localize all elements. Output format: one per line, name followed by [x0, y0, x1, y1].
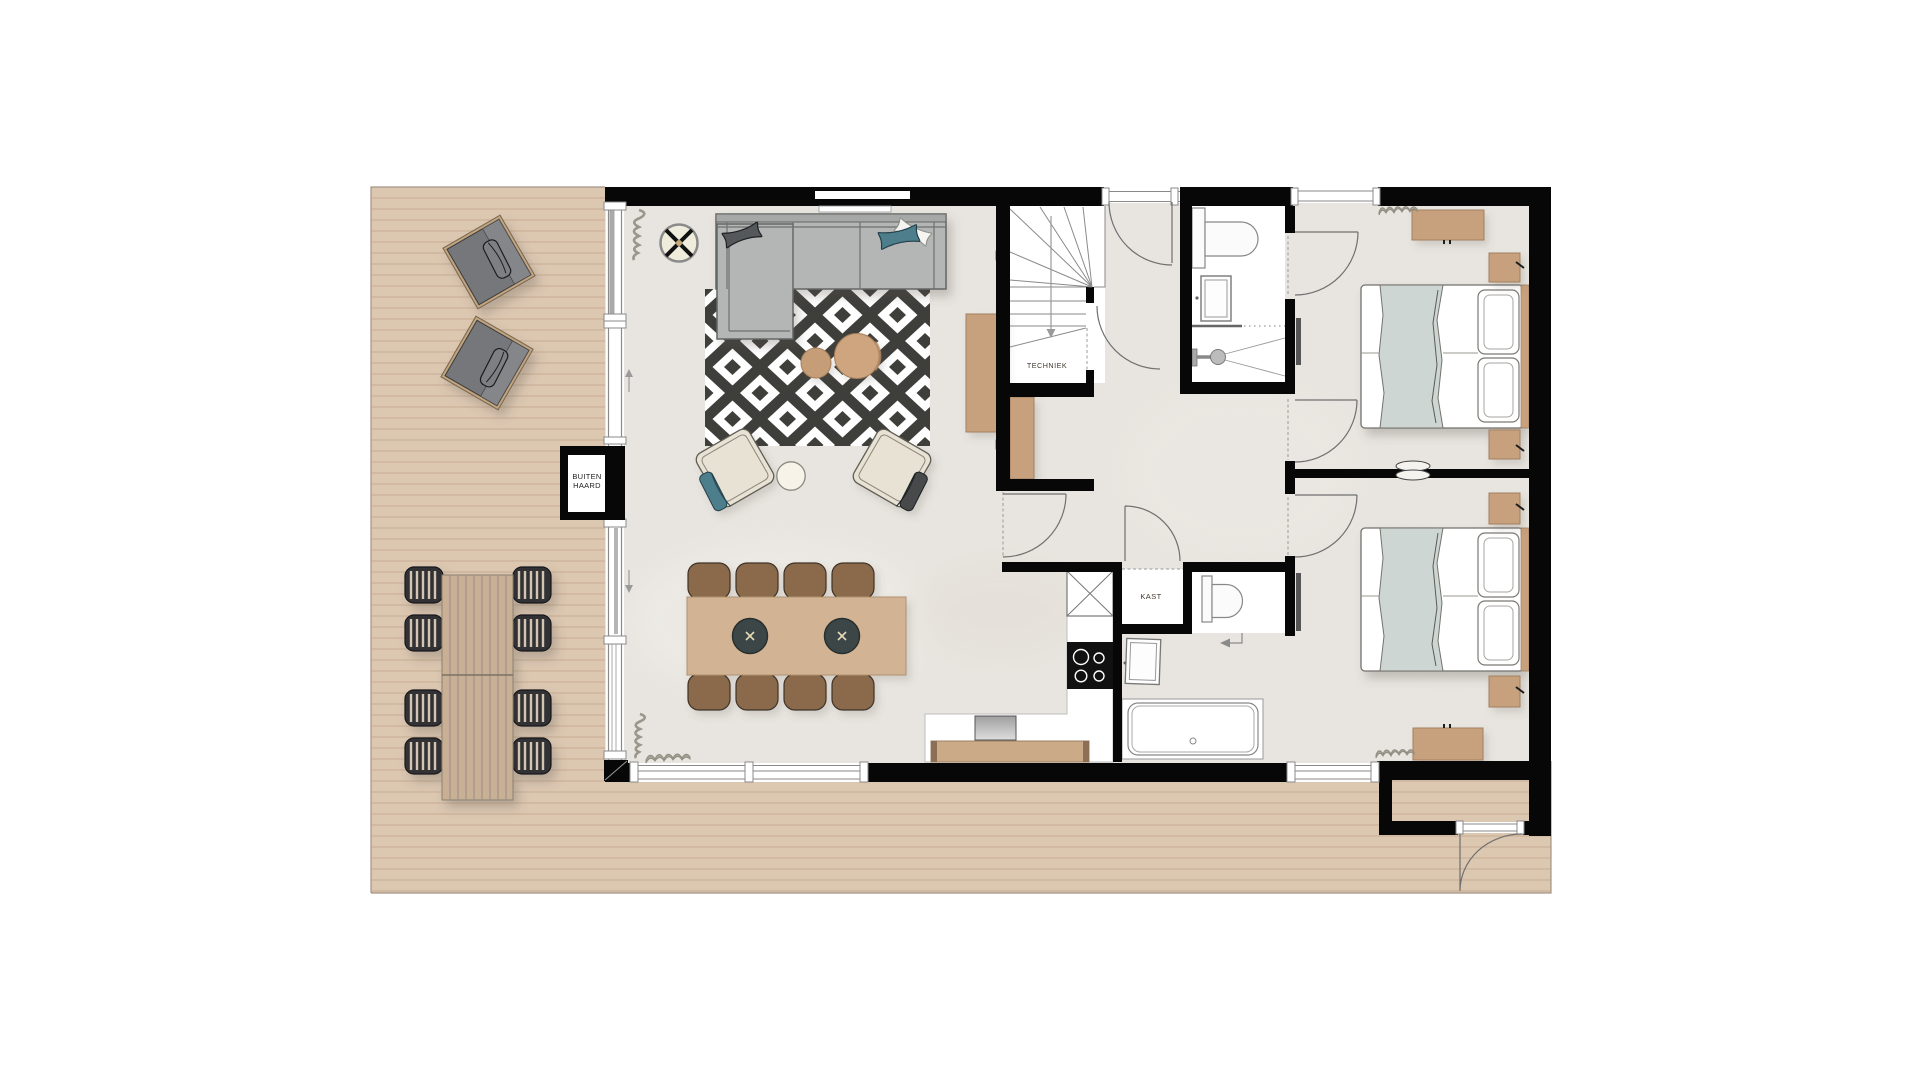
svg-text:HAARD: HAARD — [573, 481, 601, 490]
svg-text:KAST: KAST — [1140, 592, 1161, 601]
svg-text:TECHNIEK: TECHNIEK — [1027, 361, 1067, 370]
svg-text:BUITEN: BUITEN — [572, 472, 601, 481]
